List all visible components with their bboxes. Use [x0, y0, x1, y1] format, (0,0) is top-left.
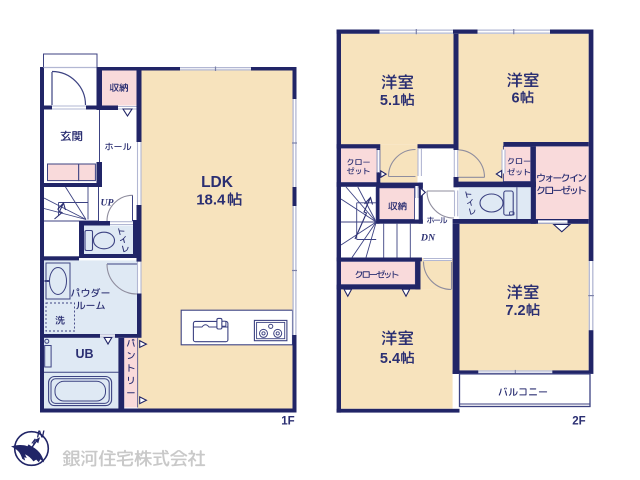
svg-text:5.1: 5.1	[380, 93, 400, 109]
svg-text:N: N	[37, 429, 45, 441]
svg-text:LDK: LDK	[201, 174, 234, 191]
svg-text:7.2: 7.2	[505, 303, 525, 319]
svg-text:1F: 1F	[281, 416, 294, 428]
svg-text:2F: 2F	[572, 416, 585, 428]
svg-text:UP: UP	[100, 198, 114, 209]
svg-text:5.4: 5.4	[380, 351, 400, 367]
svg-text:6: 6	[511, 90, 519, 106]
svg-text:18.4: 18.4	[196, 192, 226, 209]
svg-text:DN: DN	[420, 233, 436, 244]
svg-text:UB: UB	[75, 347, 93, 361]
